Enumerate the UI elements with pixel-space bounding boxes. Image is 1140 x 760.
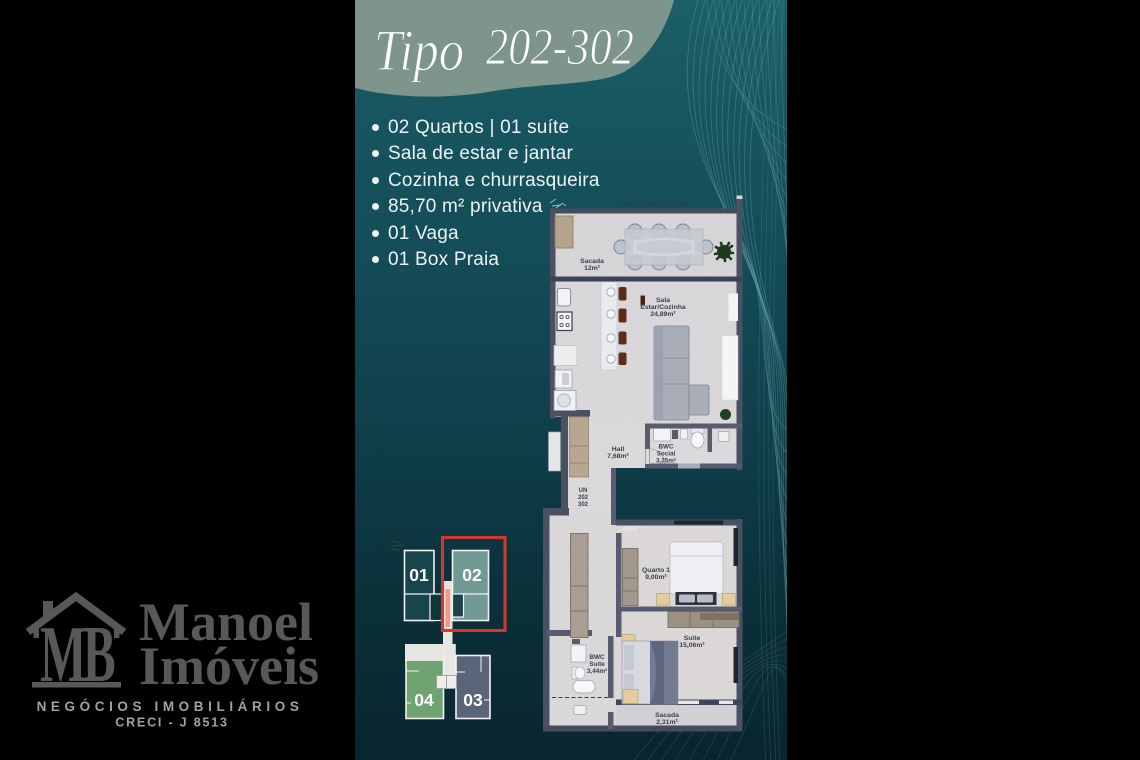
svg-text:12m²: 12m² — [584, 265, 601, 272]
svg-text:CRECI - J 8513: CRECI - J 8513 — [115, 716, 228, 730]
svg-text:BWC: BWC — [658, 444, 673, 451]
svg-text:3,25m²: 3,25m² — [656, 458, 676, 465]
svg-text:AV. MANDAGUARI: AV. MANDAGUARI — [622, 202, 687, 209]
svg-text:Quarto 1: Quarto 1 — [642, 567, 670, 574]
svg-text:Suite: Suite — [684, 635, 701, 642]
svg-text:Sacada: Sacada — [580, 258, 604, 265]
svg-text:Sacada: Sacada — [655, 712, 679, 719]
svg-text:15,06m²: 15,06m² — [679, 642, 705, 649]
svg-text:03: 03 — [463, 690, 483, 710]
svg-text:202-302: 202-302 — [486, 19, 634, 76]
svg-text:202: 202 — [578, 495, 589, 501]
svg-text:9,00m²: 9,00m² — [645, 574, 667, 581]
svg-text:BWC: BWC — [589, 654, 605, 661]
svg-text:Social: Social — [657, 451, 676, 458]
svg-text:7,68m²: 7,68m² — [607, 453, 629, 460]
svg-text:302: 302 — [578, 502, 589, 508]
svg-text:Suíte: Suíte — [589, 661, 605, 668]
svg-text:Tipo: Tipo — [374, 18, 464, 83]
svg-text:Hall: Hall — [612, 446, 625, 453]
svg-text:Imóveis: Imóveis — [139, 636, 319, 696]
svg-text:NEGÓCIOS IMOBILIÁRIOS: NEGÓCIOS IMOBILIÁRIOS — [37, 699, 304, 714]
svg-text:Estar/Cozinha: Estar/Cozinha — [640, 304, 686, 311]
svg-text:01: 01 — [409, 565, 429, 585]
svg-text:02: 02 — [462, 565, 482, 585]
svg-text:Sala: Sala — [656, 297, 670, 304]
svg-text:2,31m²: 2,31m² — [656, 719, 678, 726]
svg-text:3,44m²: 3,44m² — [587, 668, 607, 675]
svg-text:UN: UN — [579, 488, 588, 494]
svg-text:04: 04 — [414, 690, 434, 710]
svg-text:24,89m²: 24,89m² — [650, 311, 676, 318]
